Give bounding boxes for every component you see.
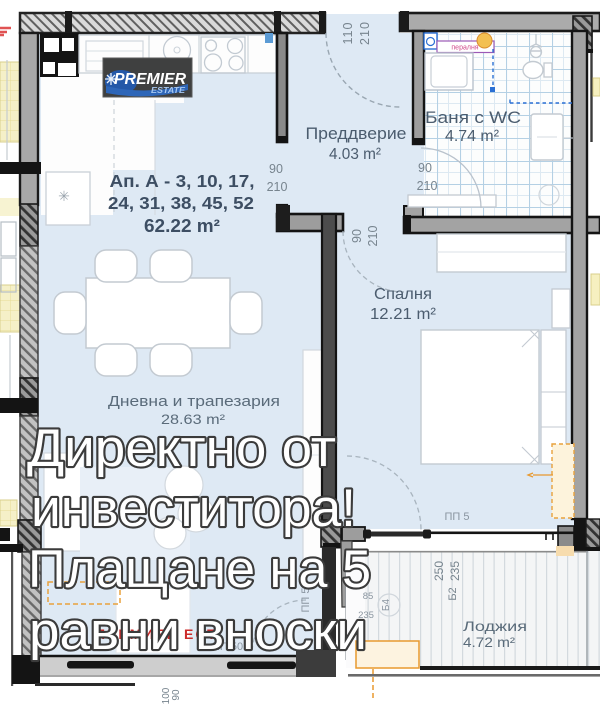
svg-text:равни вноски: равни вноски [29, 602, 367, 661]
svg-text:250: 250 [432, 561, 446, 581]
svg-text:12.21 m²: 12.21 m² [370, 306, 437, 323]
svg-text:ESTATE: ESTATE [151, 86, 186, 95]
svg-text:90: 90 [171, 689, 182, 701]
svg-text:Дневна и трапезария: Дневна и трапезария [108, 393, 280, 410]
svg-text:24, 31, 38, 45, 52: 24, 31, 38, 45, 52 [108, 193, 254, 213]
svg-text:62.22 m²: 62.22 m² [144, 216, 220, 236]
svg-text:✳: ✳ [58, 188, 70, 204]
svg-text:инвеститора!: инвеститора! [31, 479, 356, 538]
svg-text:4.03 m²: 4.03 m² [329, 146, 382, 163]
svg-text:110: 110 [341, 22, 355, 45]
svg-text:90: 90 [350, 229, 364, 243]
svg-text:210: 210 [358, 21, 372, 45]
svg-text:210: 210 [417, 179, 438, 193]
svg-text:Ап. А - 3, 10, 17,: Ап. А - 3, 10, 17, [110, 171, 255, 191]
svg-text:Преддверие: Преддверие [306, 124, 407, 143]
svg-text:235: 235 [448, 561, 462, 581]
svg-text:Баня с WC: Баня с WC [425, 108, 521, 127]
svg-text:4.74 m²: 4.74 m² [445, 128, 500, 145]
svg-text:пералня: пералня [451, 45, 478, 52]
svg-text:ПП 5: ПП 5 [445, 511, 470, 523]
svg-text:Лоджия: Лоджия [463, 618, 527, 634]
svg-text:210: 210 [267, 180, 288, 194]
svg-text:210: 210 [366, 226, 380, 247]
svg-text:Спалня: Спалня [374, 286, 432, 303]
svg-text:Б4: Б4 [381, 599, 392, 612]
svg-text:Б2: Б2 [447, 587, 459, 600]
svg-text:90: 90 [418, 161, 432, 175]
svg-text:4.72 m²: 4.72 m² [463, 635, 516, 650]
svg-text:Плащане на 5: Плащане на 5 [28, 540, 371, 599]
svg-text:Директно от: Директно от [27, 419, 336, 478]
svg-text:90: 90 [269, 162, 283, 176]
